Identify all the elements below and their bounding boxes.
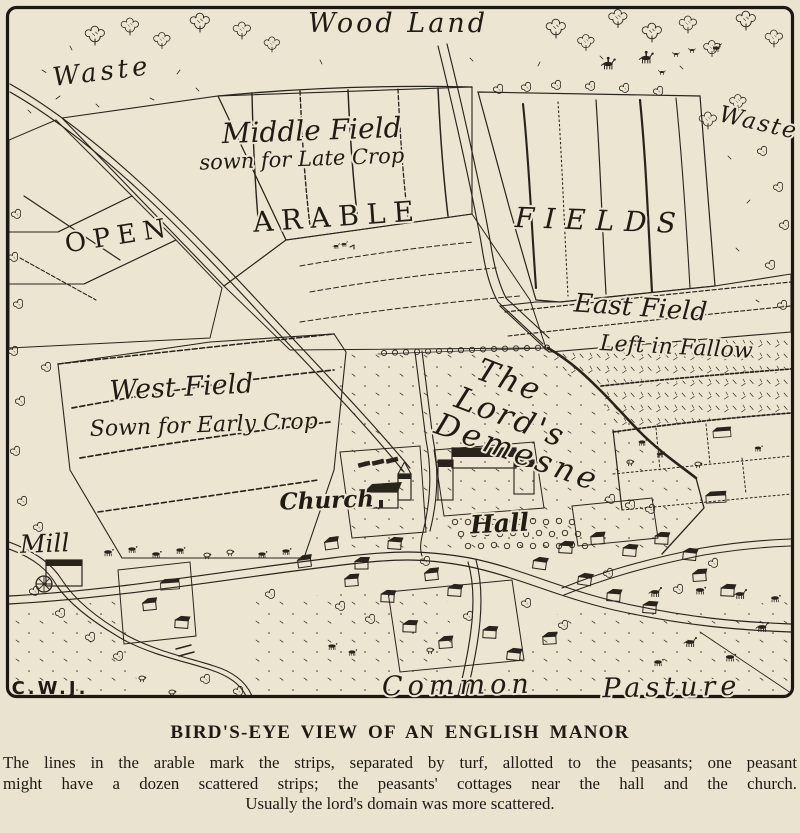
- label-church: Church: [279, 485, 374, 515]
- label-common: Common: [382, 669, 534, 703]
- caption-line-3: Usually the lord's domain was more scatt…: [3, 794, 797, 815]
- label-pasture: Pasture: [601, 671, 742, 704]
- caption-title: BIRD'S-EYE VIEW OF AN ENGLISH MANOR: [0, 722, 800, 744]
- caption-line-2: might have a dozen scattered strips; the…: [3, 774, 797, 795]
- label-hall: Hall: [468, 507, 529, 539]
- manor-map: Wood Land Waste Waste Middle Field sown …: [0, 0, 800, 707]
- figure-caption: BIRD'S-EYE VIEW OF AN ENGLISH MANOR The …: [0, 722, 800, 815]
- book-page: Wood Land Waste Waste Middle Field sown …: [0, 0, 800, 833]
- artist-signature: C.W.J.: [12, 678, 89, 699]
- label-fields: FIELDS: [513, 201, 686, 240]
- label-woodland: Wood Land: [308, 8, 488, 39]
- caption-line-1: The lines in the arable mark the strips,…: [3, 753, 797, 774]
- label-mill: Mill: [18, 528, 70, 559]
- caption-body: The lines in the arable mark the strips,…: [0, 753, 800, 815]
- manor-illustration: Wood Land Waste Waste Middle Field sown …: [0, 0, 800, 815]
